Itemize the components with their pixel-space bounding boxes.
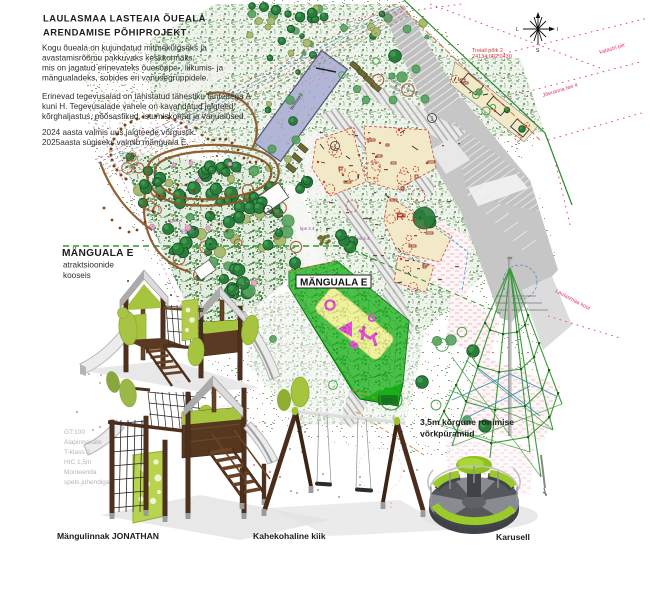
svg-text:Alapinnakate: Alapinnakate [64, 439, 102, 446]
svg-text:kooseis: kooseis [63, 271, 91, 280]
svg-text:Mängulinnak JONATHAN: Mängulinnak JONATHAN [57, 531, 159, 541]
svg-text:Monteerida: Monteerida [64, 469, 97, 476]
svg-text:kõrghaljastus, põõsastikud, is: kõrghaljastus, põõsastikud, istumiskohad… [42, 112, 246, 121]
svg-text:R: R [396, 211, 404, 223]
svg-text:Erinevad tegevusalad on tähist: Erinevad tegevusalad on tähistatud tähes… [42, 92, 251, 101]
svg-text:LAULASMAA LASTEAIA ÕUEALA: LAULASMAA LASTEAIA ÕUEALA [43, 13, 206, 24]
svg-text:MÄNGUALA E: MÄNGUALA E [300, 276, 368, 289]
svg-text:L: L [516, 27, 519, 33]
svg-text:HIC 1,5m: HIC 1,5m [64, 459, 91, 466]
svg-text:MÄNGUALA E: MÄNGUALA E [62, 246, 134, 259]
svg-text:ARENDAMISE PÕHIPROJEKT: ARENDAMISE PÕHIPROJEKT [43, 27, 187, 38]
svg-text:kps 2.4: kps 2.4 [300, 226, 315, 231]
svg-text:kps 2.4: kps 2.4 [168, 218, 183, 223]
svg-text:Kahekohaline kiik: Kahekohaline kiik [253, 531, 326, 541]
svg-text:mis on jagatud erinevateks õue: mis on jagatud erinevateks õuesõppe-, li… [42, 64, 224, 73]
svg-text:spets.juhendiga: spets.juhendiga [64, 479, 110, 486]
svg-text:atraktsioonide: atraktsioonide [63, 261, 114, 270]
svg-text:T-klass 2: T-klass 2 [64, 449, 90, 456]
svg-text:Karusell: Karusell [496, 532, 530, 542]
svg-text:avastamisrõõmu pakkuvaks keskk: avastamisrõõmu pakkuvaks keskkonnaks, [42, 54, 195, 63]
svg-text:2024 aasta valmis uus jalgteed: 2024 aasta valmis uus jalgteede võrgusti… [42, 128, 196, 137]
svg-text:2025aasta sügiseks valmib mäng: 2025aasta sügiseks valmib mänguala E. [42, 138, 189, 147]
svg-text:365: 365 [381, 398, 393, 405]
svg-text:kps 2.4: kps 2.4 [180, 228, 195, 233]
svg-text:võrkpüramiid: võrkpüramiid [420, 429, 474, 439]
svg-text:I: I [557, 27, 558, 33]
svg-text:24134:002:0430: 24134:002:0430 [472, 54, 512, 60]
svg-text:GT:100: GT:100 [64, 429, 85, 436]
svg-text:Kogu õueala on kujundatud mitm: Kogu õueala on kujundatud mitmekülgseks … [42, 44, 207, 53]
svg-text:mängualadeks, sobides eri vanu: mängualadeks, sobides eri vanusegruppide… [42, 74, 209, 83]
svg-text:kuni H. Tegevusalade vahele on: kuni H. Tegevusalade vahele on kavandatu… [42, 102, 236, 111]
svg-text:3,5m kõrgune ronimise: 3,5m kõrgune ronimise [420, 417, 514, 427]
